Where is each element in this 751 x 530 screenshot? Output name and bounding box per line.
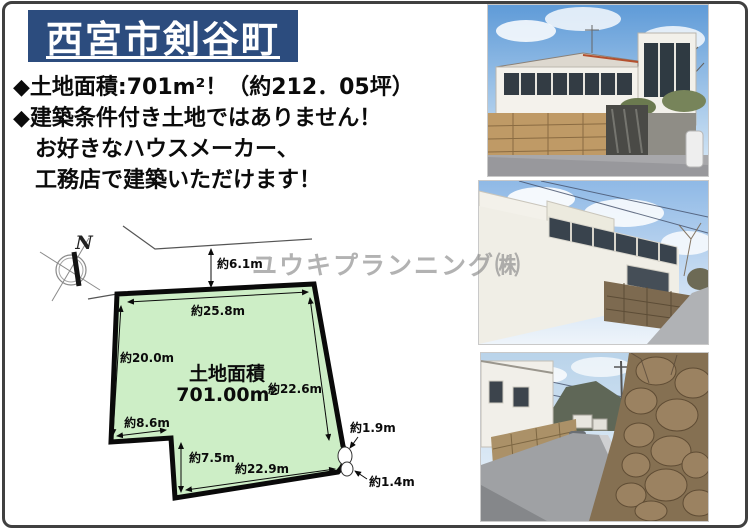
area-title: 土地面積 <box>189 362 265 385</box>
road-line-stub <box>88 294 117 299</box>
dim-bottom: 約22.9m <box>235 461 289 476</box>
street-photo-3 <box>480 352 709 522</box>
dim-top: 約25.8m <box>191 303 245 318</box>
dim-corner-a: 約1.9m <box>350 420 396 435</box>
dim-arrow-corner-a <box>350 437 358 448</box>
dim-step: 約8.6m <box>124 415 170 430</box>
dim-arrow-corner-b <box>355 471 367 479</box>
no-building-conditions-line: ◆建築条件付き土地ではありません！ <box>13 103 483 134</box>
page-title: 西宮市剣谷町 <box>28 10 298 62</box>
dim-notch: 約7.5m <box>189 450 235 465</box>
north-label: N <box>74 232 93 254</box>
page-title-text: 西宮市剣谷町 <box>46 9 280 63</box>
road-line <box>123 226 312 249</box>
dim-left: 約20.0m <box>120 350 174 365</box>
builder-line: 工務店で建築いただけます！ <box>13 165 483 196</box>
corner-arc-b <box>341 462 353 476</box>
housemaker-line: お好きなハウスメーカー、 <box>13 134 483 165</box>
exterior-photo-2 <box>478 180 709 345</box>
land-area-line: ◆土地面積:701m²！（約212．05坪） <box>13 72 483 103</box>
dim-corner-b: 約1.4m <box>369 474 415 489</box>
dim-road-offset: 約6.1m <box>217 256 263 271</box>
area-value: 701.00m² <box>176 384 277 406</box>
flyer-page: 西宮市剣谷町 ◆土地面積:701m²！（約212．05坪） ◆建築条件付き土地で… <box>0 0 751 530</box>
compass-icon: N <box>40 232 100 301</box>
land-plot-diagram: N 約6.1m 約25.8m 約20.0m 約22.6m 約22.9m 約8.6… <box>0 210 480 530</box>
exterior-photo-1 <box>487 4 709 177</box>
sales-points: ◆土地面積:701m²！（約212．05坪） ◆建築条件付き土地ではありません！… <box>13 72 483 196</box>
